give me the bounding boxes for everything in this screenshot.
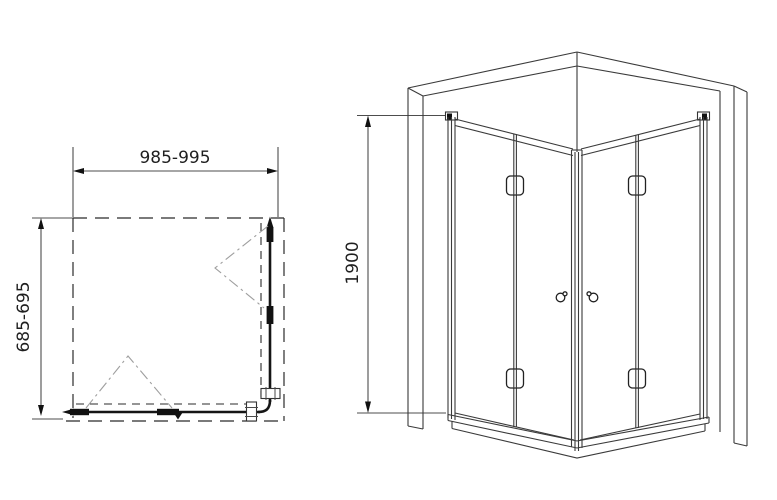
door-handle-left <box>556 292 567 302</box>
right-door-panels <box>580 112 710 440</box>
door-handle-right <box>587 292 598 302</box>
plan-door-panels <box>62 217 273 420</box>
perspective-view: 1900 <box>343 52 747 458</box>
depth-dimension: 685-695 <box>14 218 73 419</box>
depth-dimension-label: 685-695 <box>14 281 34 352</box>
fold-hinge <box>507 176 524 195</box>
plan-arrow <box>62 409 74 416</box>
left-wall <box>408 52 577 429</box>
plan-wall-outline <box>66 218 284 421</box>
plan-wall-clamps <box>245 387 280 421</box>
plan-fold-paths <box>86 226 268 408</box>
left-door-panels <box>446 112 575 440</box>
fold-hinge <box>629 176 646 195</box>
height-dimension: 1900 <box>343 116 446 414</box>
right-wall <box>577 52 747 446</box>
corner-post <box>572 150 583 451</box>
fold-hinge <box>507 369 524 388</box>
fold-hinge <box>629 369 646 388</box>
technical-drawing-page: 685-695 985-995 <box>0 0 777 500</box>
height-dimension-label: 1900 <box>343 241 363 284</box>
width-dimension-label: 985-995 <box>139 148 210 168</box>
plan-arrow <box>174 413 183 420</box>
shower-enclosure-drawing: 685-695 985-995 <box>0 0 777 500</box>
plan-view: 685-695 985-995 <box>14 147 284 421</box>
plan-hinge-mark <box>267 227 274 242</box>
width-dimension: 985-995 <box>73 147 278 217</box>
plan-hinge-mark <box>267 306 274 324</box>
